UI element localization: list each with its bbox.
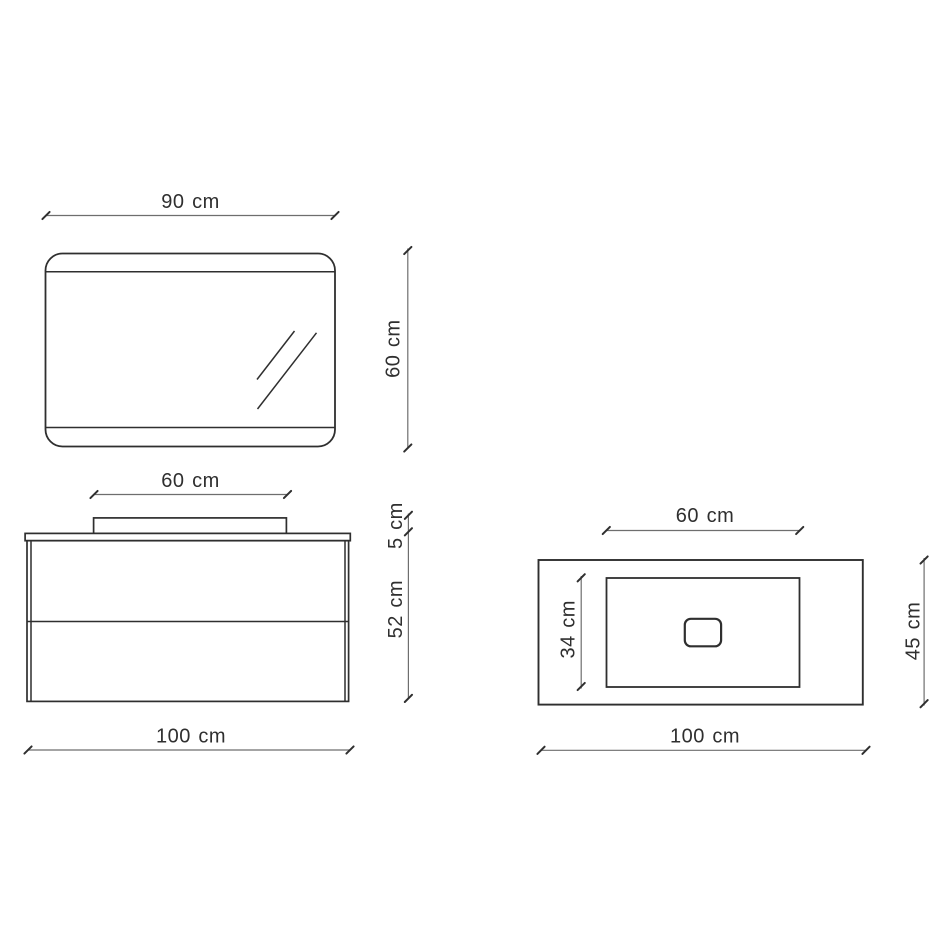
svg-text:60 cm: 60 cm xyxy=(676,505,734,527)
svg-text:5 cm: 5 cm xyxy=(385,502,407,549)
svg-text:60 cm: 60 cm xyxy=(161,470,219,492)
svg-text:60 cm: 60 cm xyxy=(383,319,405,377)
svg-text:34 cm: 34 cm xyxy=(557,600,579,658)
svg-text:45 cm: 45 cm xyxy=(902,602,924,660)
svg-text:52 cm: 52 cm xyxy=(385,580,407,638)
svg-text:100 cm: 100 cm xyxy=(156,726,226,748)
svg-text:100 cm: 100 cm xyxy=(670,725,740,747)
svg-text:90 cm: 90 cm xyxy=(161,191,219,213)
